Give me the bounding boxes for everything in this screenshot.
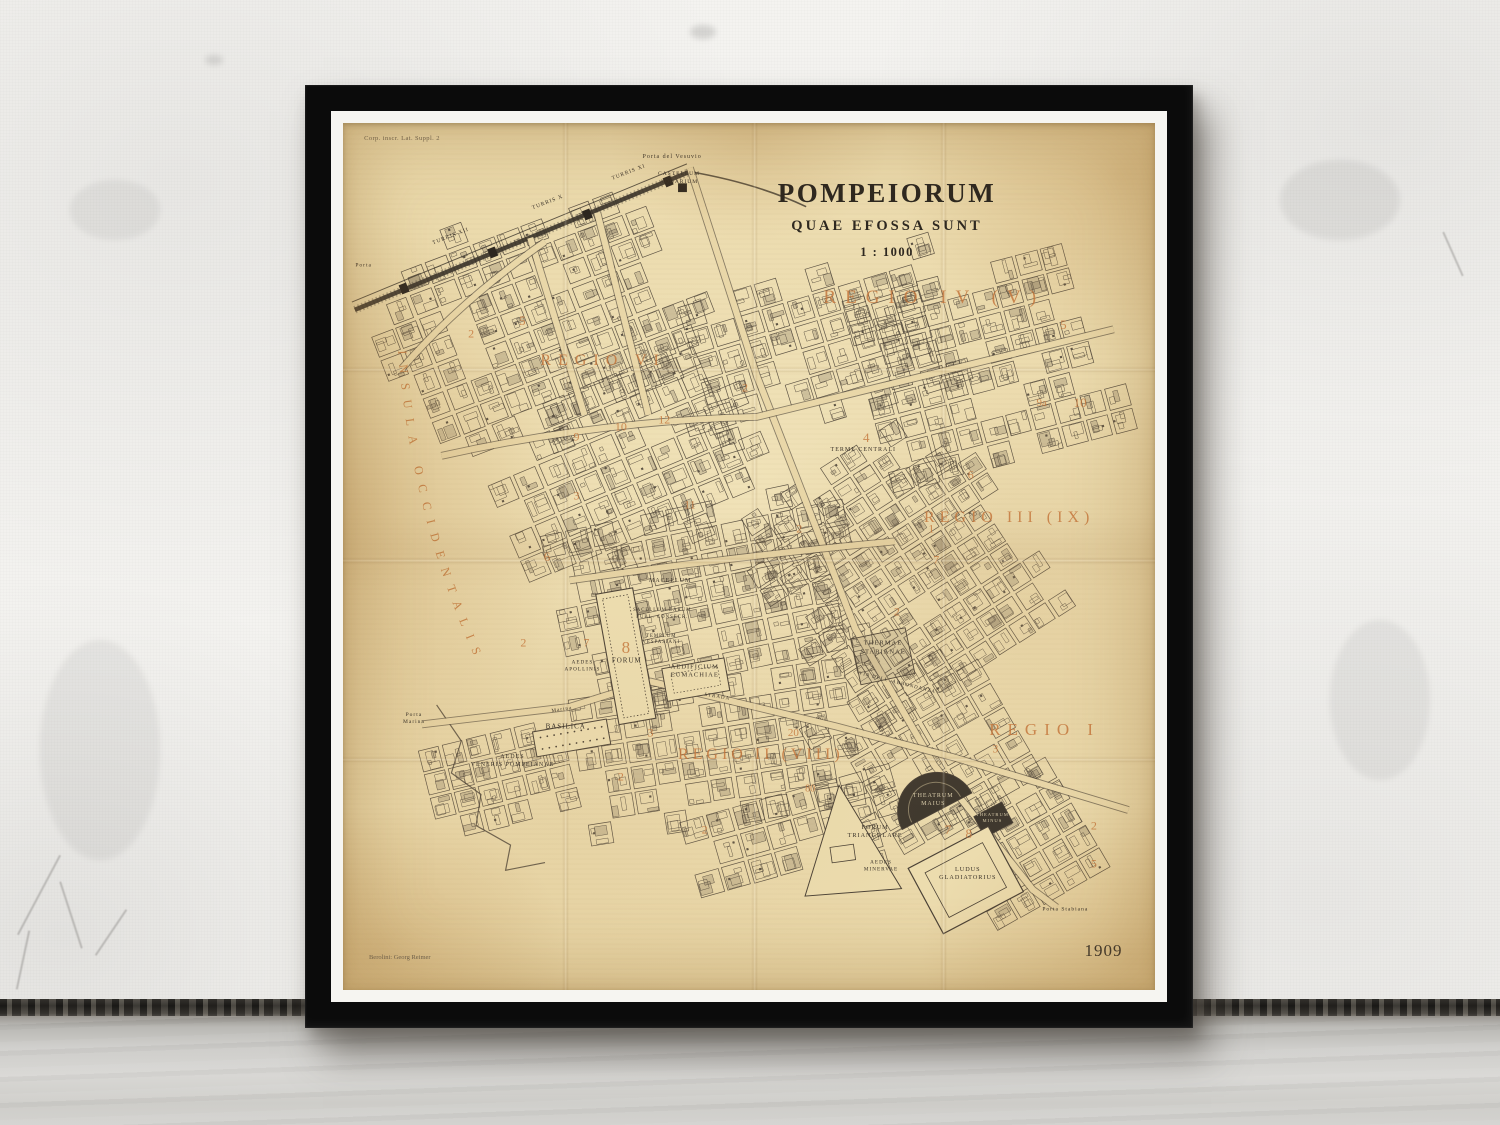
region-label: REGIO II (VIII): [678, 746, 844, 764]
place-label: Porta Stabiana: [1042, 907, 1088, 914]
place-label: TERME CENTRALI: [831, 447, 897, 455]
insula-number: 3: [992, 741, 998, 756]
insula-number: 3: [574, 488, 580, 503]
place-label: AEDIFICIUM EUMACHIAE: [671, 663, 719, 680]
place-label: SACELLUM LARUM PUBL. CONSECR.: [633, 608, 691, 620]
place-label: CASTELLUM AQUARIUM: [658, 171, 700, 185]
frame-mat: INSULA OCCIDENTALIS Corp. inscr. Lat. Su…: [331, 111, 1167, 1002]
place-label: Marina: [551, 705, 573, 715]
insula-number: 5: [1091, 857, 1097, 872]
place-label: THERMAE STABIANAE: [860, 640, 905, 657]
place-label: Porta: [355, 262, 372, 269]
insula-number: 12: [658, 412, 670, 427]
picture-frame: INSULA OCCIDENTALIS Corp. inscr. Lat. Su…: [305, 85, 1193, 1028]
place-label: TURRIS XI: [611, 163, 647, 182]
insula-number: 7: [933, 552, 939, 567]
place-label: VIA DELL' ABBONDANZA: [857, 672, 936, 698]
place-label: LUDUS GLADIATORIUS: [939, 866, 996, 882]
imprint: Berolini: Georg Reimer: [369, 954, 431, 961]
place-label: Porta del Vesuvio: [643, 154, 702, 162]
insula-number: 4: [863, 430, 870, 446]
place-label: STRADA: [704, 693, 731, 703]
place-label: AEDES APOLLINIS: [565, 659, 601, 673]
region-label: REGIO I: [989, 720, 1100, 740]
insula-number: 9: [574, 430, 580, 445]
region-label: REGIO III (IX): [924, 509, 1094, 527]
insula-number: 3: [647, 726, 653, 741]
insula-number: 8: [622, 638, 631, 658]
place-label: FORUM TRIANGULARE: [848, 824, 903, 840]
map-sheet: INSULA OCCIDENTALIS Corp. inscr. Lat. Su…: [343, 123, 1155, 990]
place-label: BASILICA: [546, 723, 586, 732]
place-label: MACELLUM: [649, 578, 691, 586]
place-label: TURRIS X: [531, 194, 564, 212]
insula-number: 20: [788, 727, 799, 739]
place-label: Porta Marina: [403, 711, 425, 725]
place-label: TURRIS XII: [432, 227, 471, 247]
year-label: 1909: [1085, 941, 1123, 961]
insula-number: 1: [928, 521, 934, 536]
framed-map-photo: INSULA OCCIDENTALIS Corp. inscr. Lat. Su…: [0, 0, 1500, 1125]
insula-number: 2: [894, 605, 900, 620]
insula-number: 11: [684, 498, 696, 513]
insula-number: 5: [1060, 317, 1067, 333]
place-label: THEATRUM MAIUS: [913, 793, 954, 809]
place-label: THEATRUM MINUS: [976, 812, 1009, 824]
place-label: AEDES VENERIS POMPEIANAE: [471, 755, 555, 771]
place-label: TEMPLUM VESPASIANI: [643, 633, 681, 645]
insula-number: 2: [468, 327, 474, 342]
place-label: AEDES MINERVAE: [864, 860, 898, 874]
region-label: REGIO IV (V): [823, 287, 1045, 309]
insula-number: 10: [615, 419, 627, 434]
insula-number: 2: [1091, 818, 1097, 833]
insula-number: 6: [544, 549, 551, 565]
insula-number: 6: [968, 468, 974, 483]
insula-number: 2: [796, 521, 802, 536]
insula-number: 2: [618, 769, 624, 784]
insula-number: 10: [1074, 395, 1087, 411]
floor: [0, 1016, 1500, 1125]
insula-number: 8: [966, 826, 973, 842]
insula-number: 2: [520, 635, 526, 650]
insula-number: 2: [742, 380, 748, 395]
map-labels-layer: REGIO VIREGIO IV (V)REGIO III (IX)REGIO …: [343, 123, 1155, 990]
insula-number: 7: [583, 635, 589, 650]
insula-number: 7: [945, 822, 952, 838]
insula-number: 5: [519, 313, 526, 329]
insula-number: 80: [805, 783, 815, 794]
region-label: REGIO VI: [540, 352, 665, 370]
insula-number: 9a: [1036, 397, 1046, 409]
insula-number: 2: [702, 823, 708, 838]
